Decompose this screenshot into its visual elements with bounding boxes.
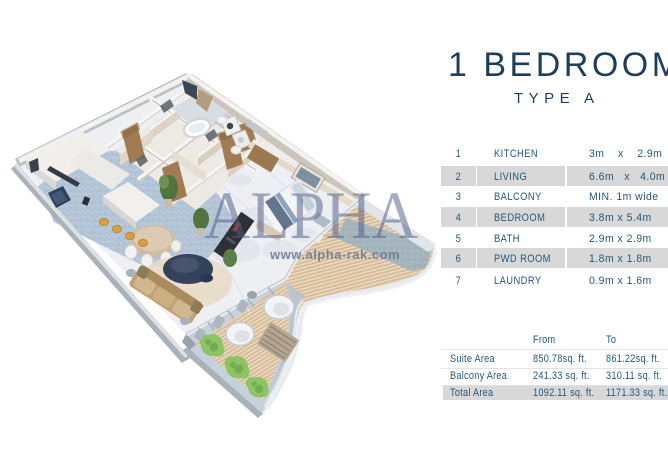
svg-text:www.alpha-rak.com: www.alpha-rak.com: [269, 247, 400, 262]
svg-text:ALPHA: ALPHA: [204, 177, 418, 253]
